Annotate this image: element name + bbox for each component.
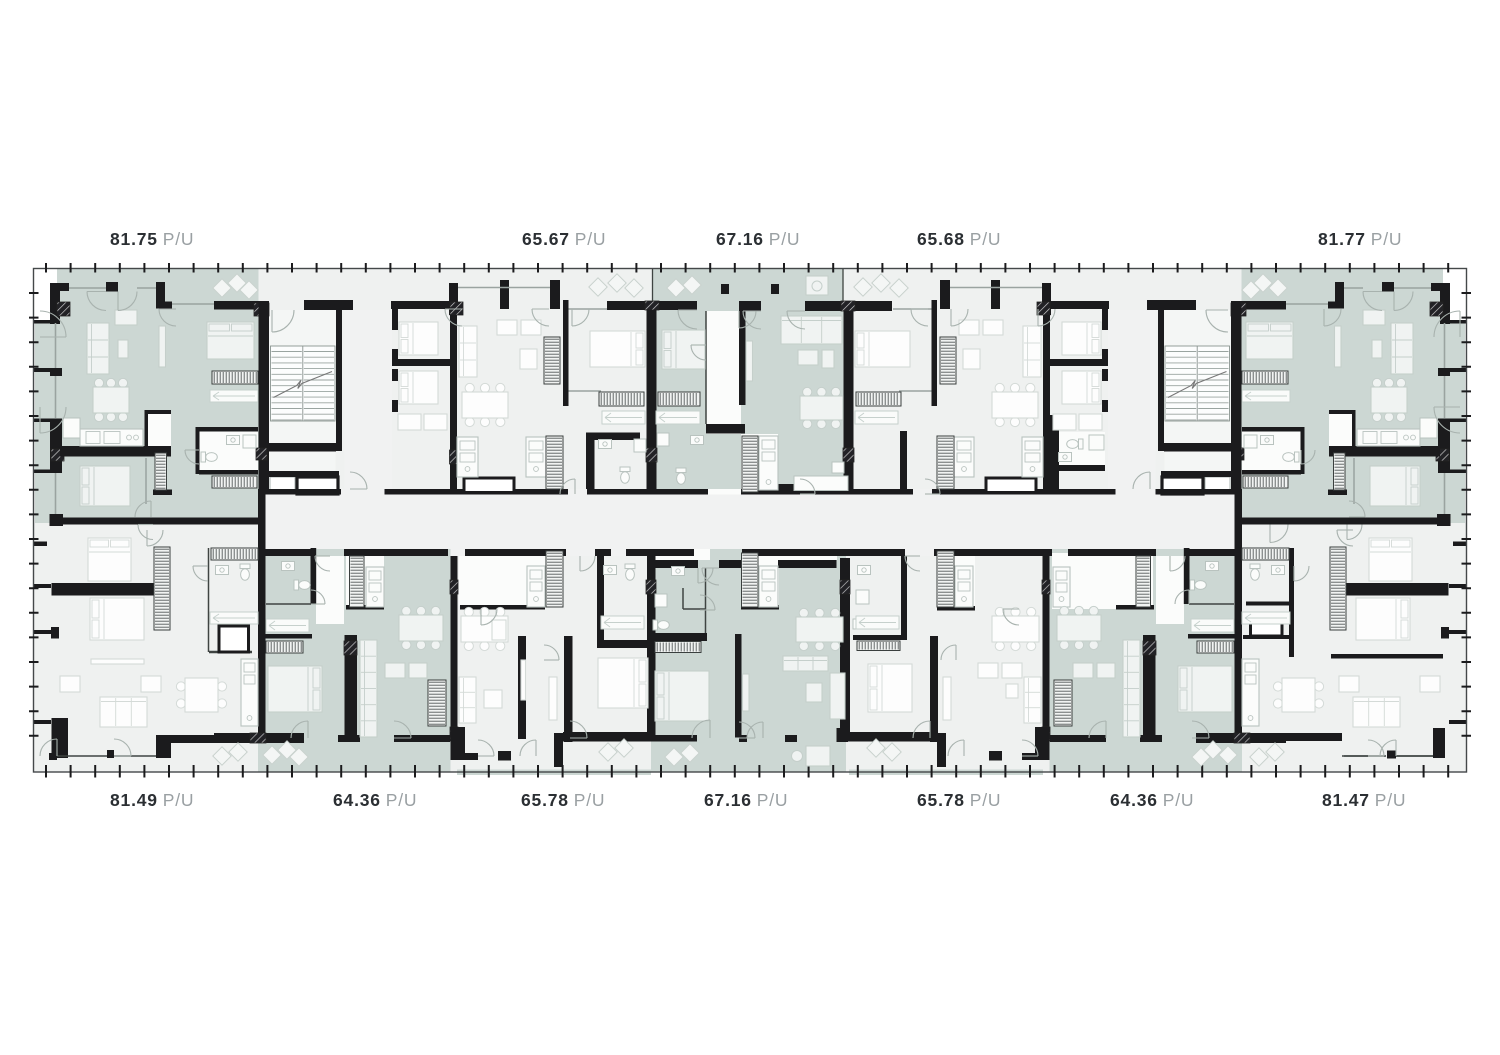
svg-text:65.67Р/U: 65.67Р/U xyxy=(522,229,606,249)
svg-text:81.75Р/U: 81.75Р/U xyxy=(110,229,194,249)
svg-text:67.16Р/U: 67.16Р/U xyxy=(716,229,800,249)
svg-text:65.78Р/U: 65.78Р/U xyxy=(521,790,605,810)
svg-text:81.49Р/U: 81.49Р/U xyxy=(110,790,194,810)
svg-text:64.36Р/U: 64.36Р/U xyxy=(333,790,417,810)
svg-text:67.16Р/U: 67.16Р/U xyxy=(704,790,788,810)
svg-text:81.77Р/U: 81.77Р/U xyxy=(1318,229,1402,249)
svg-text:65.78Р/U: 65.78Р/U xyxy=(917,790,1001,810)
svg-text:81.47Р/U: 81.47Р/U xyxy=(1322,790,1406,810)
svg-text:64.36Р/U: 64.36Р/U xyxy=(1110,790,1194,810)
svg-text:65.68Р/U: 65.68Р/U xyxy=(917,229,1001,249)
